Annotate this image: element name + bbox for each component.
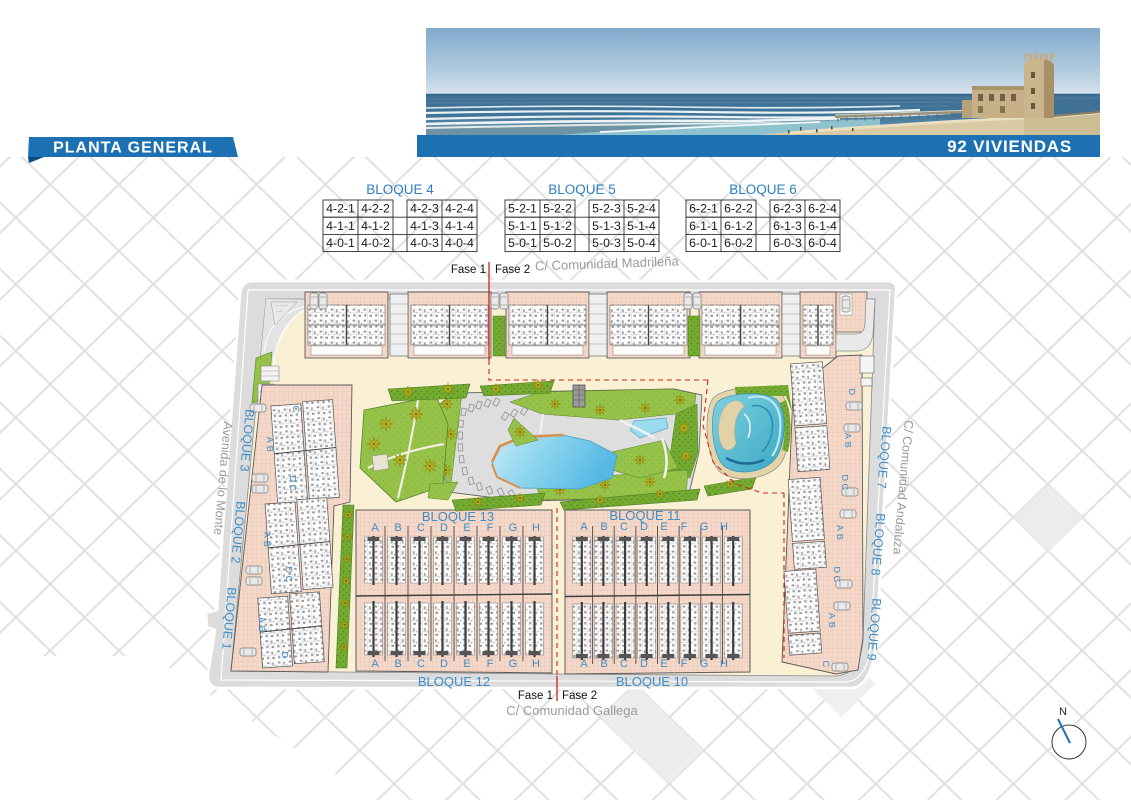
svg-text:D: D [832,566,842,574]
svg-text:A: A [835,524,845,531]
svg-text:BLOQUE 4: BLOQUE 4 [366,182,434,197]
svg-text:F: F [681,521,688,533]
svg-text:Fase 1: Fase 1 [518,690,553,702]
svg-text:6-1-3: 6-1-3 [773,219,802,233]
svg-text:G: G [509,658,518,670]
svg-text:Fase 1: Fase 1 [451,264,486,276]
svg-text:A: A [843,432,853,439]
svg-text:D: D [280,651,290,659]
svg-text:B: B [257,625,267,632]
svg-text:6-2-1: 6-2-1 [689,202,718,216]
svg-text:6-2-4: 6-2-4 [808,202,837,216]
svg-text:5-0-1: 5-0-1 [508,236,537,250]
svg-text:H: H [532,522,540,534]
svg-text:F: F [681,658,688,670]
svg-text:A: A [265,436,275,443]
svg-text:4-1-2: 4-1-2 [361,219,390,233]
svg-text:C: C [291,405,301,413]
svg-text:BLOQUE 11: BLOQUE 11 [609,508,680,523]
svg-text:4-2-4: 4-2-4 [445,202,474,216]
svg-text:B: B [394,658,401,670]
svg-text:5-0-4: 5-0-4 [627,236,656,250]
svg-text:4-1-3: 4-1-3 [410,219,439,233]
svg-text:A: A [827,612,837,619]
svg-text:D: D [288,475,298,483]
svg-text:H: H [720,658,728,670]
svg-text:G: G [700,658,709,670]
svg-text:4-0-1: 4-0-1 [326,236,355,250]
svg-text:B: B [835,533,845,540]
svg-text:C: C [288,484,298,492]
svg-text:C: C [821,660,831,668]
svg-text:4-0-2: 4-0-2 [361,236,390,250]
svg-text:BLOQUE 13: BLOQUE 13 [422,509,494,524]
svg-text:C: C [840,483,850,491]
svg-text:5-2-2: 5-2-2 [543,202,572,216]
svg-text:4-2-3: 4-2-3 [410,202,439,216]
svg-text:B: B [394,522,401,534]
svg-text:6-0-3: 6-0-3 [773,236,802,250]
svg-text:5-2-1: 5-2-1 [508,202,537,216]
svg-text:BLOQUE 10: BLOQUE 10 [616,674,688,689]
svg-text:4-0-4: 4-0-4 [445,236,474,250]
svg-text:D: D [847,388,857,396]
svg-text:Fase 2: Fase 2 [495,264,530,276]
svg-text:B: B [843,441,853,448]
svg-text:6-1-2: 6-1-2 [724,219,753,233]
svg-text:5-1-2: 5-1-2 [543,219,572,233]
svg-text:G: G [700,521,709,533]
svg-text:D: D [840,474,850,482]
svg-text:H: H [720,521,728,533]
svg-text:B: B [265,445,275,452]
svg-text:C/ Comunidad Gallega: C/ Comunidad Gallega [506,703,638,718]
svg-text:4-0-3: 4-0-3 [410,236,439,250]
svg-text:5-1-4: 5-1-4 [627,219,656,233]
svg-text:A: A [580,658,588,670]
svg-text:D: D [284,566,294,574]
svg-text:5-0-3: 5-0-3 [592,236,621,250]
svg-text:4-1-4: 4-1-4 [445,219,474,233]
svg-text:6-0-4: 6-0-4 [808,236,837,250]
svg-text:6-0-2: 6-0-2 [724,236,753,250]
svg-text:B: B [600,658,607,670]
svg-text:5-2-4: 5-2-4 [627,202,656,216]
svg-text:5-1-1: 5-1-1 [508,219,537,233]
svg-text:E: E [660,658,667,670]
svg-text:4-2-1: 4-2-1 [326,202,355,216]
svg-text:C: C [620,658,628,670]
svg-text:5-1-3: 5-1-3 [592,219,621,233]
svg-text:6-1-4: 6-1-4 [808,219,837,233]
svg-text:A: A [580,521,588,533]
svg-text:6-1-1: 6-1-1 [689,219,718,233]
svg-text:BLOQUE 12: BLOQUE 12 [418,674,490,689]
svg-text:4-1-1: 4-1-1 [326,219,355,233]
svg-text:N: N [1059,706,1067,718]
svg-text:92 VIVIENDAS: 92 VIVIENDAS [947,137,1072,156]
svg-text:C: C [284,575,294,583]
svg-text:F: F [487,658,494,670]
svg-text:Fase 2: Fase 2 [562,690,597,702]
svg-text:A: A [371,658,379,670]
svg-text:E: E [463,658,470,670]
svg-text:A: A [262,531,272,538]
svg-text:C: C [832,575,842,583]
svg-text:BLOQUE 5: BLOQUE 5 [548,182,616,197]
svg-text:6-0-1: 6-0-1 [689,236,718,250]
svg-text:D: D [640,658,648,670]
svg-text:B: B [827,621,837,628]
svg-text:G: G [509,522,518,534]
svg-text:H: H [532,658,540,670]
svg-text:5-0-2: 5-0-2 [543,236,572,250]
svg-text:C: C [417,658,425,670]
svg-text:6-2-2: 6-2-2 [724,202,753,216]
svg-text:A: A [371,522,379,534]
svg-text:A: A [257,616,267,623]
svg-text:6-2-3: 6-2-3 [773,202,802,216]
svg-text:B: B [600,521,607,533]
svg-text:D: D [440,658,448,670]
svg-text:BLOQUE 6: BLOQUE 6 [729,182,797,197]
svg-text:5-2-3: 5-2-3 [592,202,621,216]
svg-text:4-2-2: 4-2-2 [361,202,390,216]
svg-text:B: B [262,540,272,547]
svg-text:PLANTA GENERAL: PLANTA GENERAL [53,140,213,157]
